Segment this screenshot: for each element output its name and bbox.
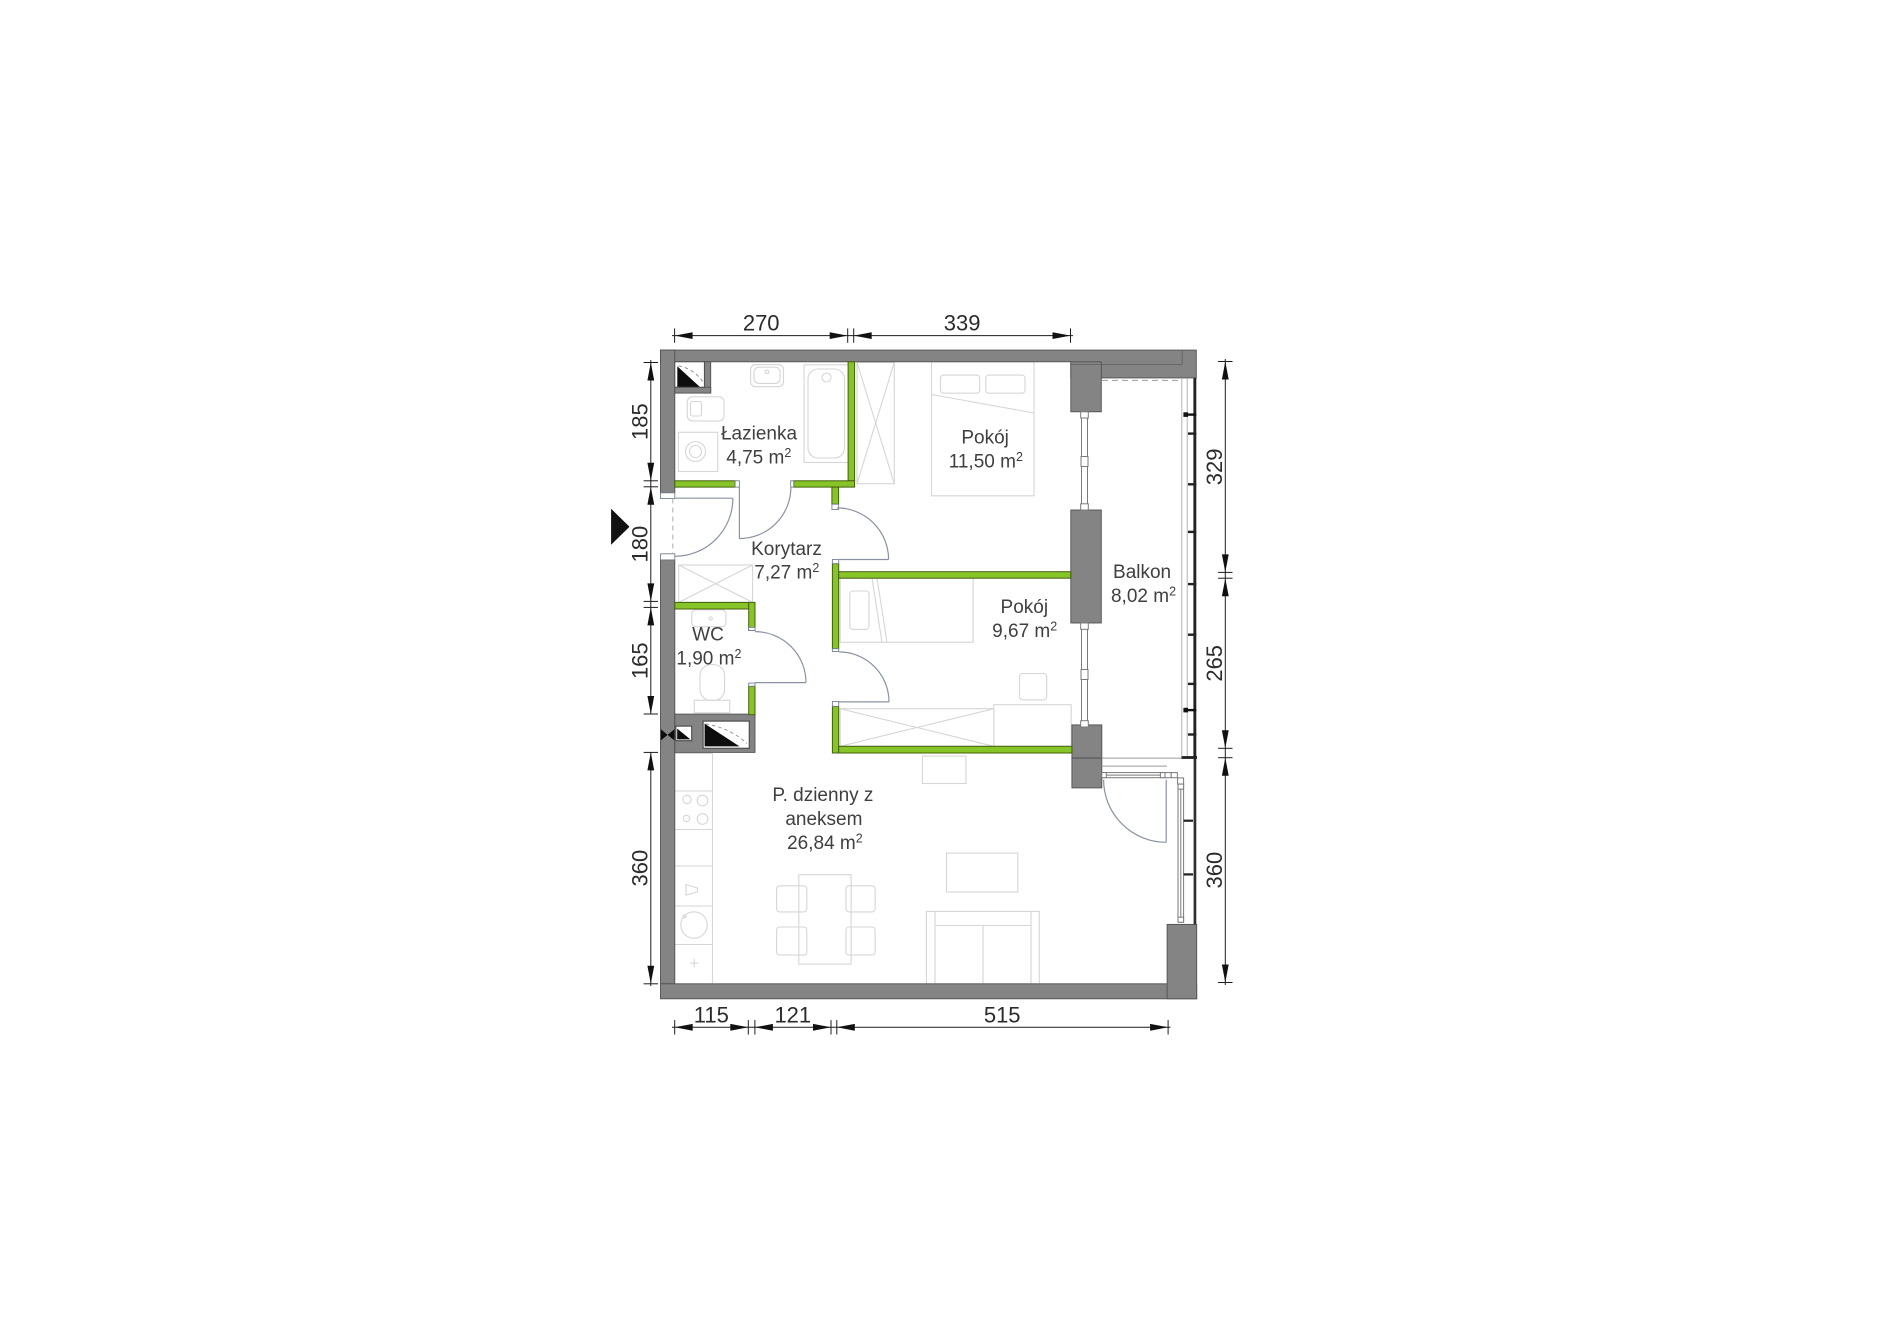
svg-text:Korytarz: Korytarz xyxy=(751,539,822,560)
svg-text:7,27 m2: 7,27 m2 xyxy=(754,561,819,584)
svg-text:26,84 m2: 26,84 m2 xyxy=(787,832,863,855)
svg-text:Pokój: Pokój xyxy=(961,428,1009,449)
svg-text:360: 360 xyxy=(1202,852,1227,889)
svg-text:WC: WC xyxy=(692,625,724,646)
svg-text:4,75 m2: 4,75 m2 xyxy=(726,446,791,469)
svg-text:185: 185 xyxy=(627,403,652,440)
svg-text:Balkon: Balkon xyxy=(1113,562,1171,583)
svg-text:115: 115 xyxy=(694,1003,729,1028)
svg-text:121: 121 xyxy=(774,1003,811,1028)
svg-text:515: 515 xyxy=(984,1003,1021,1028)
svg-text:8,02 m2: 8,02 m2 xyxy=(1111,585,1176,608)
svg-text:9,67 m2: 9,67 m2 xyxy=(992,619,1057,642)
svg-text:339: 339 xyxy=(944,310,981,335)
svg-text:11,50 m2: 11,50 m2 xyxy=(949,450,1023,473)
svg-text:270: 270 xyxy=(743,310,780,335)
svg-text:329: 329 xyxy=(1202,449,1227,486)
svg-text:265: 265 xyxy=(1202,645,1227,682)
svg-text:180: 180 xyxy=(627,526,652,563)
svg-text:360: 360 xyxy=(627,850,652,887)
svg-text:Łazienka: Łazienka xyxy=(721,424,797,445)
svg-text:aneksem: aneksem xyxy=(785,809,862,830)
svg-text:165: 165 xyxy=(627,642,652,679)
svg-text:Pokój: Pokój xyxy=(1001,597,1049,618)
svg-text:1,90 m2: 1,90 m2 xyxy=(676,647,741,670)
svg-text:P. dzienny z: P. dzienny z xyxy=(772,785,873,806)
